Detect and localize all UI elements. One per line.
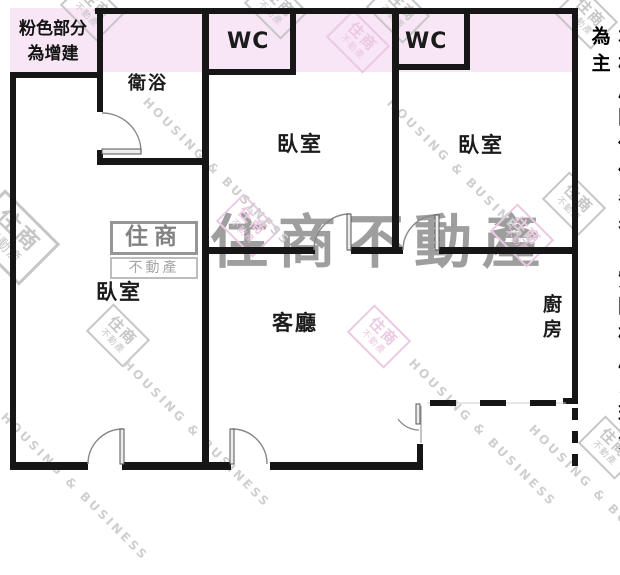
floor-plan-svg <box>0 0 620 480</box>
door-leaf-bathroom <box>102 149 141 154</box>
wall-left <box>10 72 16 470</box>
room-label-bedroom-left: 臥室 <box>96 282 142 303</box>
door-leaf-bedroom-left <box>120 429 124 464</box>
room-label-bedroom-middle: 臥室 <box>277 134 323 155</box>
wall-bedroom-divider <box>392 8 399 254</box>
wall-divider-vertical <box>202 8 209 470</box>
room-label-kitchen: 廚房 <box>541 294 560 344</box>
wall-wc-left-bottom <box>202 69 296 75</box>
door-leaf-bedroom-right <box>435 215 439 250</box>
wall-middle-c <box>439 247 578 254</box>
wall-wc-left-right <box>290 8 296 75</box>
room-label-wc-right: WC <box>405 31 447 53</box>
wall-topleft <box>10 72 103 78</box>
room-label-wc-left: WC <box>227 31 269 53</box>
wall-bathroom-bottom <box>97 158 208 165</box>
door-arc-bedroom-right <box>403 215 438 250</box>
wall-bathroom-left-upper <box>97 8 103 112</box>
wall-wc-right-bottom <box>392 64 470 70</box>
door-leaf-entrance <box>230 429 234 464</box>
wall-bottom-stub <box>417 444 423 466</box>
dashed-walls-group <box>427 403 575 468</box>
door-leaf-bedroom-middle <box>347 214 351 250</box>
wall-middle-b <box>351 247 403 254</box>
room-label-bedroom-right: 臥室 <box>458 135 504 156</box>
door-leaf-rear <box>416 404 420 424</box>
wall-top <box>95 8 578 14</box>
wall-right <box>572 8 578 404</box>
wall-middle-a <box>202 247 315 254</box>
room-label-bathroom: 衛浴 <box>128 75 168 93</box>
wall-wc-right-right <box>464 8 470 70</box>
door-arc-bathroom <box>102 113 141 152</box>
disclaimer-vertical-text: 本格局圖僅供參考，實際格局以現況為主 <box>586 26 620 480</box>
door-arc-entrance <box>232 429 267 464</box>
floor-plan-page: { "note": { "text": "粉色部分\n為增建" }, "disc… <box>0 0 620 480</box>
pink-addition-note: 粉色部分 為增建 <box>11 17 95 66</box>
room-label-living-room: 客廳 <box>272 313 318 334</box>
door-arc-bedroom-left <box>88 429 123 464</box>
door-arc-bedroom-middle <box>314 214 350 250</box>
wall-bottom-c <box>270 462 423 470</box>
wall-bottom-b <box>122 462 231 470</box>
wall-bottom-a <box>10 462 88 470</box>
